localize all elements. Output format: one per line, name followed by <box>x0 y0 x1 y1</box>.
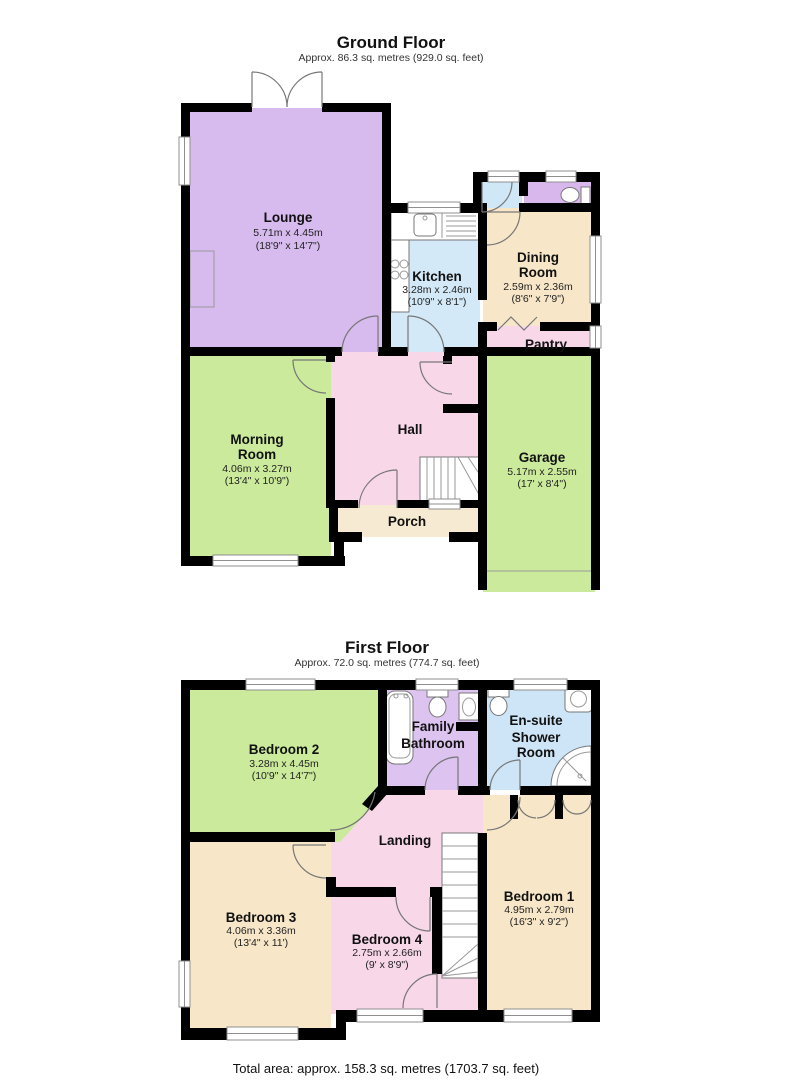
svg-text:Hall: Hall <box>398 422 423 437</box>
svg-text:3.28m x 4.45m: 3.28m x 4.45m <box>249 758 319 770</box>
svg-text:5.71m x 4.45m: 5.71m x 4.45m <box>253 227 323 239</box>
svg-text:(18'9" x 14'7"): (18'9" x 14'7") <box>256 240 321 252</box>
window <box>357 1009 423 1022</box>
svg-text:Landing: Landing <box>379 833 432 848</box>
pantry-label: Pantry <box>525 337 568 352</box>
floorplan-page: Ground Floor Approx. 86.3 sq. metres (92… <box>0 0 785 1080</box>
window <box>213 555 298 566</box>
window <box>488 171 519 182</box>
window <box>179 137 190 185</box>
svg-text:4.06m x 3.27m: 4.06m x 3.27m <box>222 463 292 475</box>
toilet-icon <box>427 689 448 717</box>
window <box>179 961 190 1007</box>
svg-text:Porch: Porch <box>388 514 426 529</box>
svg-text:Room: Room <box>519 265 557 280</box>
bath-icon <box>386 691 413 764</box>
window <box>590 236 601 303</box>
window <box>416 679 458 690</box>
window <box>546 171 576 182</box>
svg-text:Bathroom: Bathroom <box>401 736 465 751</box>
floor-plan-svg: Ground Floor Approx. 86.3 sq. metres (92… <box>0 0 785 1080</box>
first-floor-subtitle: Approx. 72.0 sq. metres (774.7 sq. feet) <box>294 657 479 669</box>
sink-icon <box>565 687 592 712</box>
french-door-icon <box>252 72 322 107</box>
stairs-icon <box>420 457 482 505</box>
svg-text:Garage: Garage <box>519 450 566 465</box>
svg-text:(8'6" x 7'9"): (8'6" x 7'9") <box>512 293 565 305</box>
svg-text:Lounge: Lounge <box>264 210 313 225</box>
bedroom-1-label: Bedroom 1 4.95m x 2.79m (16'3" x 9'2") <box>504 889 575 928</box>
window <box>590 326 601 348</box>
svg-text:Bedroom 3: Bedroom 3 <box>226 910 297 925</box>
ground-floor-title: Ground Floor <box>337 33 446 52</box>
svg-text:(16'3" x 9'2"): (16'3" x 9'2") <box>510 916 569 928</box>
svg-text:4.95m x 2.79m: 4.95m x 2.79m <box>504 904 574 916</box>
kitchen-label: Kitchen 3.28m x 2.46m (10'9" x 8'1") <box>402 269 472 308</box>
svg-text:(17' x 8'4"): (17' x 8'4") <box>517 478 566 490</box>
ground-floor-plan: Ground Floor Approx. 86.3 sq. metres (92… <box>179 33 601 592</box>
window <box>514 679 567 690</box>
svg-text:4.06m x 3.36m: 4.06m x 3.36m <box>226 925 296 937</box>
sink-icon <box>459 693 480 720</box>
svg-text:(10'9" x 8'1"): (10'9" x 8'1") <box>408 296 467 308</box>
svg-text:5.17m x 2.55m: 5.17m x 2.55m <box>507 466 577 478</box>
svg-text:Room: Room <box>238 447 276 462</box>
porch-label: Porch <box>388 514 426 529</box>
landing-label: Landing <box>379 833 432 848</box>
toilet-icon <box>488 689 509 716</box>
svg-text:En-suite: En-suite <box>509 713 563 728</box>
first-floor-plan: First Floor Approx. 72.0 sq. metres (774… <box>179 638 600 1040</box>
svg-text:2.59m x 2.36m: 2.59m x 2.36m <box>503 281 573 293</box>
ensuite-label: En-suite Shower Room <box>509 713 563 760</box>
window <box>227 1027 298 1040</box>
svg-text:(13'4" x 10'9"): (13'4" x 10'9") <box>225 475 290 487</box>
hall-label: Hall <box>398 422 423 437</box>
stairs-icon <box>442 833 478 978</box>
svg-text:Bedroom 2: Bedroom 2 <box>249 742 320 757</box>
first-floor-title: First Floor <box>345 638 429 657</box>
ground-floor-subtitle: Approx. 86.3 sq. metres (929.0 sq. feet) <box>298 52 483 64</box>
svg-text:3.28m x 2.46m: 3.28m x 2.46m <box>402 284 472 296</box>
svg-text:Kitchen: Kitchen <box>412 269 462 284</box>
toilet-icon <box>561 187 590 204</box>
sink-unit-icon <box>391 210 480 240</box>
svg-text:Morning: Morning <box>230 432 283 447</box>
svg-text:Room: Room <box>517 745 555 760</box>
svg-text:Dining: Dining <box>517 250 559 265</box>
svg-text:(9' x 8'9"): (9' x 8'9") <box>365 959 408 971</box>
svg-text:Pantry: Pantry <box>525 337 568 352</box>
bedroom-2-label: Bedroom 2 3.28m x 4.45m (10'9" x 14'7") <box>249 742 320 782</box>
window <box>408 202 460 213</box>
svg-text:Family: Family <box>412 719 455 734</box>
svg-text:Bedroom 1: Bedroom 1 <box>504 889 575 904</box>
window <box>504 1009 572 1022</box>
window <box>246 679 315 690</box>
svg-text:2.75m x 2.66m: 2.75m x 2.66m <box>352 947 422 959</box>
svg-text:Shower: Shower <box>512 730 562 745</box>
svg-text:Bedroom 4: Bedroom 4 <box>352 932 423 947</box>
svg-text:(13'4" x 11'): (13'4" x 11') <box>234 937 288 949</box>
window <box>429 499 460 509</box>
svg-text:(10'9" x 14'7"): (10'9" x 14'7") <box>252 770 317 782</box>
bedroom-3-label: Bedroom 3 4.06m x 3.36m (13'4" x 11') <box>226 910 297 949</box>
total-area-footer: Total area: approx. 158.3 sq. metres (17… <box>233 1061 539 1076</box>
